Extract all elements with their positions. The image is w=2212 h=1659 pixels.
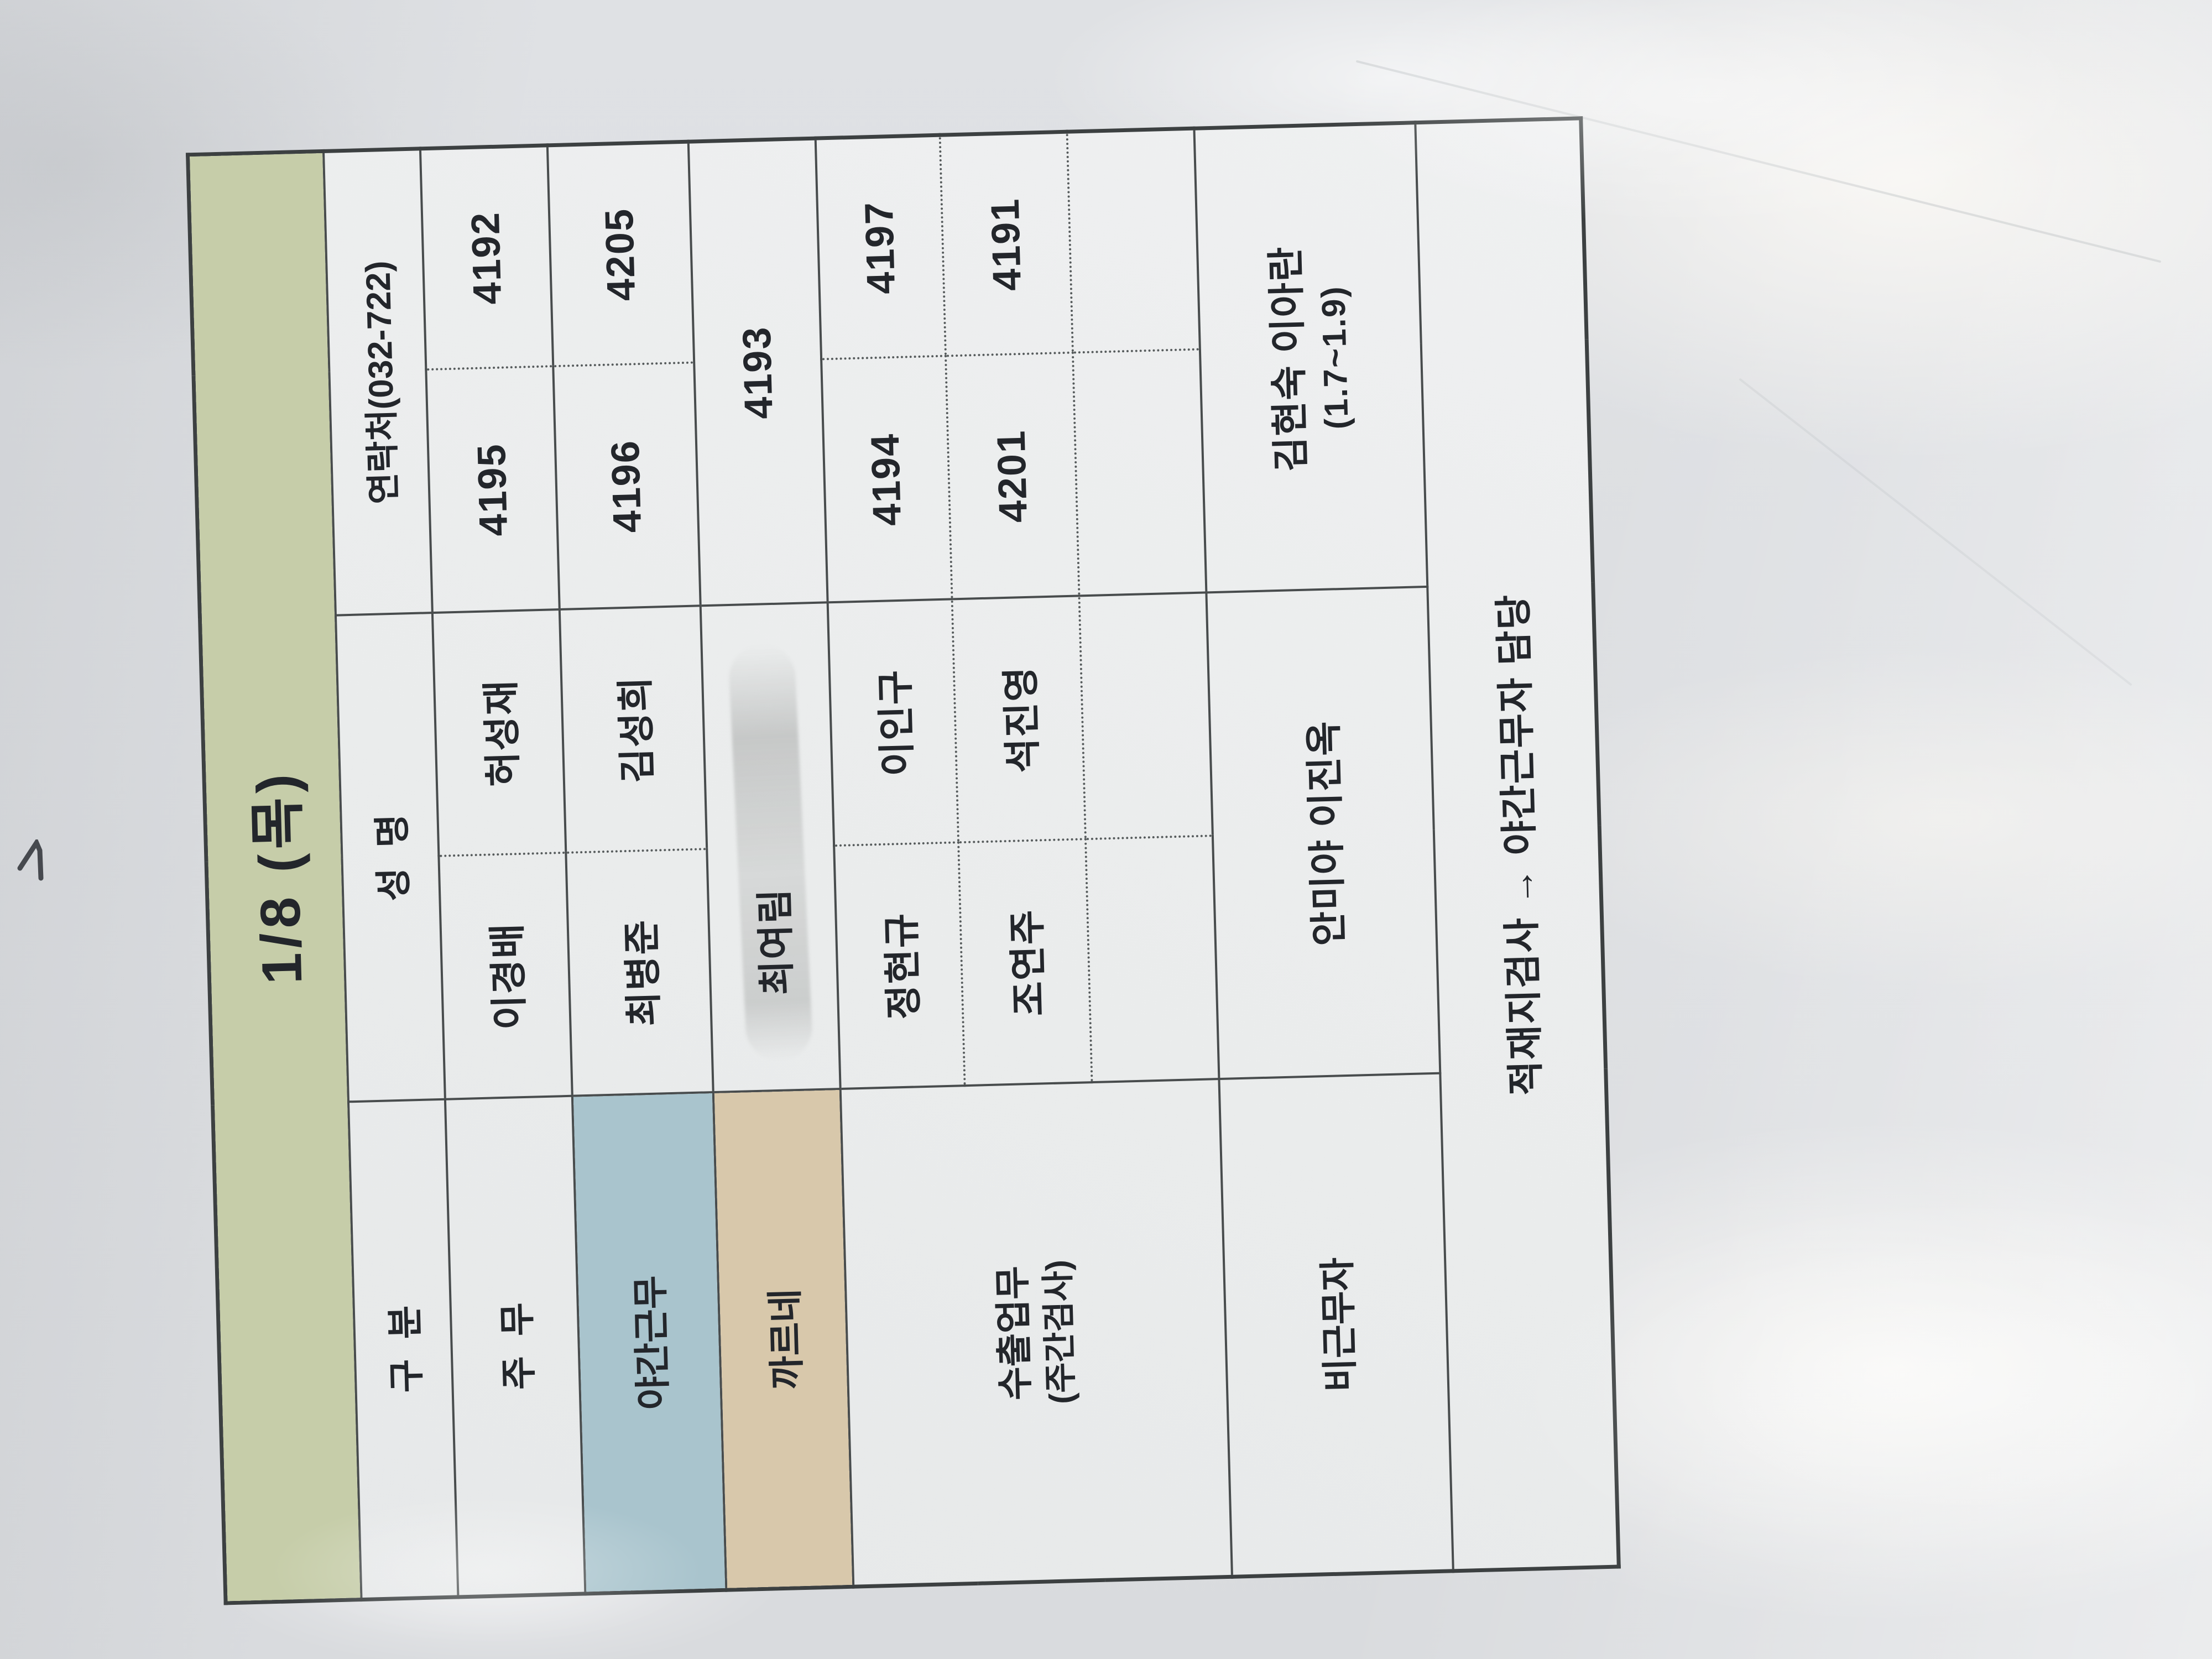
cell-extension: 4192 — [420, 145, 552, 370]
cell-extension-empty — [1072, 349, 1206, 596]
cell-category-off-duty: 비근무자 — [1219, 1073, 1453, 1577]
cell-extension: 4201 — [946, 353, 1079, 599]
cell-name: 최여림 — [744, 888, 801, 996]
header-contact: 연락처(032-722) — [323, 149, 432, 615]
cell-category-day-duty: 주무 — [445, 1096, 585, 1597]
header-category: 구분 — [348, 1099, 457, 1599]
cell-name-merged: 안미야 이진옥 — [1206, 587, 1440, 1079]
cell-extension: 4191 — [940, 132, 1072, 356]
cell-name-empty — [1086, 836, 1219, 1083]
cell-category-export: 수출업무 (주간검사) — [840, 1079, 1232, 1587]
cell-extension: 4194 — [821, 356, 952, 603]
photo-of-paper-roster: 1/8 (목) 구분 성명 연락처(032-722) 주무 이경배 허성재 41… — [0, 0, 2212, 1659]
rotated-roster-table: 1/8 (목) 구분 성명 연락처(032-722) 주무 이경배 허성재 41… — [186, 120, 1617, 1605]
cell-name-merged: 최여림 — [700, 603, 840, 1093]
cell-name: 조연주 — [958, 839, 1092, 1086]
cell-extension: 4205 — [547, 142, 693, 367]
cell-name: 이인구 — [827, 599, 958, 846]
cell-name: 이경배 — [439, 853, 572, 1099]
cell-extension: 4196 — [553, 363, 700, 610]
cell-extension: 4197 — [815, 135, 945, 359]
row-off-duty: 비근무자 안미야 이진옥 김현숙 이아란 (1.7~1.9) — [1194, 123, 1453, 1577]
cell-contact-merged: 김현숙 이아란 (1.7~1.9) — [1194, 123, 1427, 593]
cell-name: 석진영 — [952, 596, 1085, 843]
cell-name: 허성재 — [432, 610, 565, 857]
correction-smudge — [727, 643, 813, 1062]
cell-name: 김성희 — [559, 606, 706, 853]
cell-name: 최병준 — [566, 849, 713, 1097]
cell-name-empty — [1079, 593, 1212, 839]
cell-extension-empty — [1067, 128, 1199, 353]
cell-category-carnet: 까르네 — [713, 1089, 853, 1590]
cell-category-night-shift: 야간근무 — [572, 1093, 726, 1594]
paper-stage: 1/8 (목) 구분 성명 연락처(032-722) 주무 이경배 허성재 41… — [0, 0, 2212, 1659]
cell-name: 정현규 — [834, 843, 964, 1089]
cell-extension-merged: 4193 — [688, 138, 827, 606]
cell-extension: 4195 — [426, 367, 559, 613]
header-name: 성명 — [335, 613, 445, 1102]
duty-roster-table: 1/8 (목) 구분 성명 연락처(032-722) 주무 이경배 허성재 41… — [186, 116, 1621, 1605]
